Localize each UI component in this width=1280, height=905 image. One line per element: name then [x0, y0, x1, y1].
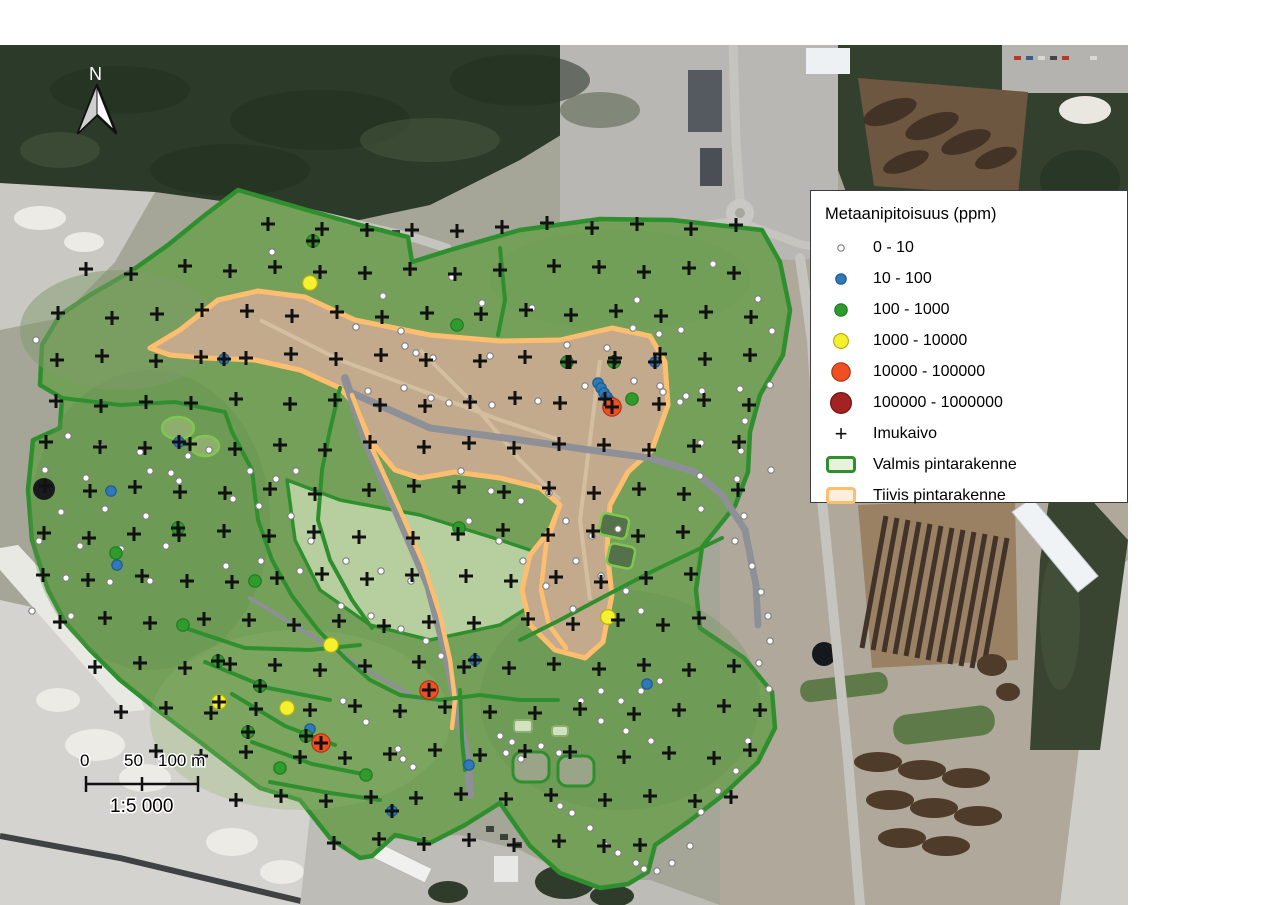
windrow-pad — [858, 498, 1018, 668]
measurement-dot — [683, 393, 689, 399]
measurement-dot — [742, 418, 748, 424]
scale-label-50: 50 — [124, 751, 143, 770]
legend-well-label: Imukaivo — [873, 425, 937, 443]
measurement-dot — [33, 337, 39, 343]
measurement-dot — [715, 788, 721, 794]
measurement-dot — [733, 768, 739, 774]
measurement-dot — [185, 453, 191, 459]
measurement-dot — [656, 331, 662, 337]
measurement-dot — [598, 688, 604, 694]
legend-class-0-symbol — [821, 235, 861, 261]
measurement-dot — [63, 575, 69, 581]
measurement-dot — [557, 803, 563, 809]
measurement-dot — [107, 579, 113, 585]
measurement-dot — [657, 383, 663, 389]
legend-area-0: Valmis pintarakenne — [821, 449, 1117, 480]
measurement-dot — [769, 328, 775, 334]
well-plus-icon: + — [835, 423, 848, 445]
measurement-dot — [413, 350, 419, 356]
measurement-dot — [633, 860, 639, 866]
measurement-dot — [618, 698, 624, 704]
legend-class-4: 10000 - 100000 — [821, 356, 1117, 387]
measurement-dot — [518, 498, 524, 504]
measurement-dot — [479, 300, 485, 306]
measurement-dot — [623, 728, 629, 734]
measurement-dot — [110, 547, 122, 559]
measurement-dot — [563, 518, 569, 524]
measurement-dot — [497, 733, 503, 739]
measurement-dot — [343, 558, 349, 564]
measurement-dot — [401, 385, 407, 391]
measurement-dot — [496, 538, 502, 544]
measurement-dot — [249, 575, 261, 587]
measurement-dot — [280, 701, 295, 716]
measurement-dot — [626, 393, 638, 405]
measurement-dot — [582, 383, 588, 389]
measurement-dot — [42, 467, 48, 473]
legend-well-symbol: + — [821, 423, 861, 445]
legend-class-1-label: 10 - 100 — [873, 270, 932, 288]
legend-dot-icon — [828, 235, 854, 261]
measurement-dot — [83, 475, 89, 481]
compost-pad — [858, 78, 1028, 196]
measurement-dot — [638, 608, 644, 614]
north-label: N — [89, 64, 102, 84]
legend-class-3-label: 1000 - 10000 — [873, 332, 967, 350]
measurement-dot — [638, 688, 644, 694]
measurement-dot — [466, 518, 472, 524]
legend-area-1-symbol — [821, 487, 861, 504]
measurement-dot — [503, 750, 509, 756]
measurement-dot — [398, 328, 404, 334]
measurement-dot — [378, 568, 384, 574]
legend-class-4-label: 10000 - 100000 — [873, 363, 985, 381]
measurement-dot — [669, 860, 675, 866]
measurement-dot — [678, 327, 684, 333]
measurement-dot — [293, 468, 299, 474]
legend-class-5: 100000 - 1000000 — [821, 387, 1117, 418]
measurement-dot — [137, 449, 143, 455]
measurement-dot — [766, 686, 772, 692]
measurement-dot — [518, 756, 524, 762]
measurement-dot — [767, 638, 773, 644]
measurement-dot — [65, 433, 71, 439]
measurement-dot — [428, 395, 434, 401]
legend-class-2-label: 100 - 1000 — [873, 301, 950, 319]
measurement-dot — [274, 762, 286, 774]
measurement-dot — [438, 653, 444, 659]
measurement-dot — [77, 543, 83, 549]
measurement-dot — [106, 486, 116, 496]
legend-dot-icon — [828, 390, 854, 416]
legend-dot-icon — [828, 328, 854, 354]
area-swatch-icon — [826, 456, 856, 473]
legend-class-2-symbol — [821, 297, 861, 323]
measurement-dot — [143, 513, 149, 519]
measurement-dot — [177, 619, 189, 631]
measurement-dot — [698, 809, 704, 815]
measurement-dot — [269, 249, 275, 255]
legend-area-0-label: Valmis pintarakenne — [873, 456, 1017, 474]
measurement-dot — [737, 386, 743, 392]
legend-rows: 0 - 10 10 - 100 100 - 1000 1000 - 10000 … — [821, 232, 1117, 511]
measurement-dot — [657, 678, 663, 684]
measurement-dot — [368, 613, 374, 619]
measurement-dot — [487, 353, 493, 359]
measurement-dot — [458, 468, 464, 474]
parking-lot — [1002, 45, 1128, 93]
measurement-dot — [573, 558, 579, 564]
measurement-dot — [587, 825, 593, 831]
measurement-dot — [258, 558, 264, 564]
measurement-dot — [288, 513, 294, 519]
measurement-dot — [767, 382, 773, 388]
measurement-dot — [710, 261, 716, 267]
weigh-station — [700, 148, 722, 186]
measurement-dot — [297, 568, 303, 574]
measurement-dot — [623, 588, 629, 594]
measurement-dot — [756, 660, 762, 666]
legend-class-2: 100 - 1000 — [821, 294, 1117, 325]
building-top-dark — [688, 70, 722, 132]
measurement-dot — [535, 398, 541, 404]
legend-dot-icon — [828, 359, 854, 385]
measurement-dot — [398, 626, 404, 632]
legend-class-0-label: 0 - 10 — [873, 239, 914, 257]
measurement-dot — [402, 343, 408, 349]
measurement-dot — [360, 769, 372, 781]
measurement-dot — [765, 613, 771, 619]
measurement-dot — [615, 850, 621, 856]
measurement-dot — [598, 718, 604, 724]
measurement-dot — [641, 866, 647, 872]
measurement-dot — [648, 738, 654, 744]
measurement-dot — [256, 503, 262, 509]
measurement-dot — [520, 558, 526, 564]
measurement-dot — [206, 447, 212, 453]
measurement-dot — [303, 276, 318, 291]
legend-class-3-symbol — [821, 328, 861, 354]
legend-area-1: Tiivis pintarakenne — [821, 480, 1117, 511]
legend-box: Metaanipitoisuus (ppm) 0 - 10 10 - 100 1… — [810, 190, 1128, 503]
measurement-dot — [660, 389, 666, 395]
measurement-dot — [363, 719, 369, 725]
legend-class-1: 10 - 100 — [821, 263, 1117, 294]
measurement-dot — [543, 583, 549, 589]
roundabout-island — [735, 208, 745, 218]
legend-dot-icon — [828, 266, 854, 292]
measurement-dot — [147, 578, 153, 584]
measurement-dot — [464, 760, 474, 770]
measurement-dot — [365, 388, 371, 394]
measurement-dot — [68, 613, 74, 619]
legend-title: Metaanipitoisuus (ppm) — [825, 205, 1117, 224]
measurement-dot — [631, 378, 637, 384]
measurement-dot — [538, 743, 544, 749]
measurement-dot — [755, 296, 761, 302]
legend-dot-icon — [828, 297, 854, 323]
measurement-dot — [488, 488, 494, 494]
debris-pile — [1059, 96, 1111, 124]
measurement-dot — [642, 679, 652, 689]
measurement-dot — [732, 538, 738, 544]
legend-class-1-symbol — [821, 266, 861, 292]
legend-area-0-symbol — [821, 456, 861, 473]
legend-class-5-label: 100000 - 1000000 — [873, 394, 1003, 412]
building-top-white-roof — [806, 48, 850, 74]
measurement-dot — [654, 868, 660, 874]
measurement-dot — [601, 610, 616, 625]
legend-class-4-symbol — [821, 359, 861, 385]
legend-class-0: 0 - 10 — [821, 232, 1117, 263]
measurement-dot — [400, 756, 406, 762]
measurement-dot — [338, 603, 344, 609]
measurement-dot — [102, 506, 108, 512]
measurement-dot — [741, 513, 747, 519]
measurement-dot — [353, 324, 359, 330]
measurement-dot — [749, 563, 755, 569]
measurement-dot — [380, 293, 386, 299]
measurement-dot — [570, 606, 576, 612]
measurement-dot — [734, 476, 740, 482]
legend-class-3: 1000 - 10000 — [821, 325, 1117, 356]
measurement-dot — [112, 560, 122, 570]
measurement-dot — [604, 345, 610, 351]
measurement-dot — [634, 297, 640, 303]
measurement-dot — [230, 496, 236, 502]
measurement-dot — [147, 468, 153, 474]
measurement-dot — [615, 526, 621, 532]
building-bottom-house — [494, 856, 518, 882]
scale-ratio: 1:5 000 — [110, 796, 173, 817]
measurement-dot — [768, 467, 774, 473]
measurement-dot — [163, 543, 169, 549]
measurement-dot — [423, 638, 429, 644]
measurement-dot — [340, 698, 346, 704]
measurement-dot — [758, 589, 764, 595]
measurement-dot — [223, 563, 229, 569]
measurement-dot — [509, 739, 515, 745]
measurement-dot — [677, 399, 683, 405]
measurement-dot — [446, 400, 452, 406]
legend-class-5-symbol — [821, 390, 861, 416]
measurement-dot — [556, 750, 562, 756]
legend-area-1-label: Tiivis pintarakenne — [873, 487, 1006, 505]
measurement-dot — [247, 468, 253, 474]
measurement-dot — [395, 746, 401, 752]
measurement-dot — [168, 470, 174, 476]
measurement-dot — [451, 319, 463, 331]
measurement-dot — [687, 843, 693, 849]
scale-label-100m: 100 m — [158, 751, 205, 770]
legend-well: +Imukaivo — [821, 418, 1117, 449]
scale-label-0: 0 — [80, 751, 89, 770]
measurement-dot — [36, 538, 42, 544]
measurement-dot — [58, 509, 64, 515]
measurement-dot — [630, 325, 636, 331]
measurement-dot — [569, 810, 575, 816]
measurement-dot — [273, 476, 279, 482]
area-swatch-icon — [826, 487, 856, 504]
measurement-dot — [324, 638, 339, 653]
measurement-dot — [698, 506, 704, 512]
measurement-dot — [489, 402, 495, 408]
map-page: N 0 50 100 m 1:5 000 Metaanipitoisuus (p… — [0, 0, 1280, 905]
measurement-dot — [697, 473, 703, 479]
measurement-dot — [176, 478, 182, 484]
measurement-dot — [410, 764, 416, 770]
measurement-dot — [564, 342, 570, 348]
measurement-dot — [29, 608, 35, 614]
